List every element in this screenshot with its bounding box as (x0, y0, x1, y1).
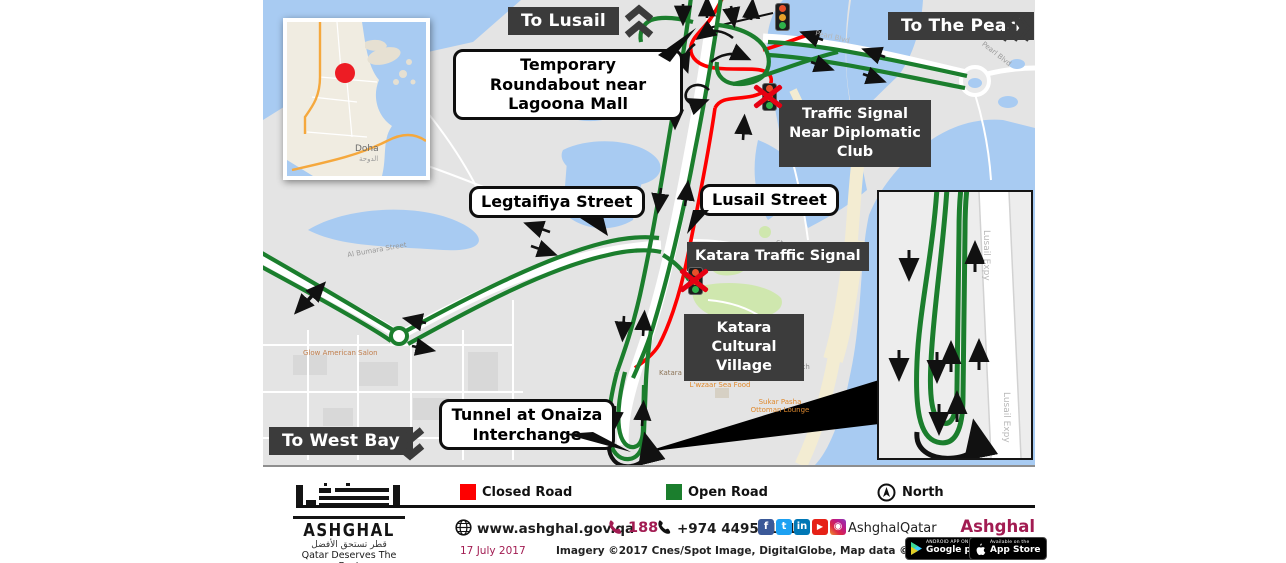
callout-pointer (575, 214, 611, 240)
overview-inset-map: Doha الدوحة (283, 18, 430, 180)
closed-road-legend-label: Closed Road (482, 485, 572, 500)
traffic-light-icon (775, 3, 790, 31)
google-play-icon (911, 542, 922, 555)
callout-pointer (679, 208, 713, 238)
katara-signal-label: Katara Traffic Signal (687, 242, 869, 271)
closed-x-icon (678, 265, 710, 297)
doha-label: Doha (355, 144, 379, 154)
hotline-number: 188 (628, 520, 658, 536)
twitter-icon[interactable]: t (776, 519, 792, 535)
ashghal-road-closure-flyer: Doha الدوحة Pearl Blvd Pearl Blvd Al Bum… (0, 0, 1286, 563)
tunnel-detail-inset: Lusail Expy Lusail Expy (877, 190, 1033, 460)
sukar-pasha-label: Sukar Pasha Ottoman Lounge (749, 398, 811, 414)
logo-wordmark: ASHGHAL (293, 519, 405, 540)
to-west-bay-label: To West Bay (269, 427, 413, 455)
chevron-down-icon (394, 425, 426, 461)
footer-divider (296, 505, 1035, 508)
north-label: North (902, 485, 944, 500)
chevron-up-icon (623, 4, 655, 40)
callout-pointer (563, 432, 635, 456)
closed-x-icon (752, 81, 784, 113)
legtaifiya-street-callout: Legtaifiya Street (469, 186, 645, 218)
globe-icon (455, 519, 472, 536)
logo-tagline-arabic: قطر تستحق الأفضل (293, 540, 405, 550)
social-handle: AshghalQatar (848, 521, 937, 536)
open-road-swatch (666, 484, 682, 500)
lwzaar-sea-food-label: L'wzaar Sea Food (689, 381, 751, 389)
app-store-badge-text: App Store (990, 546, 1041, 555)
facebook-icon[interactable]: f (758, 519, 774, 535)
lusail-expy-road-label: Lusail Expy (1001, 392, 1011, 443)
callout-pointer (656, 28, 701, 63)
temporary-roundabout-callout: Temporary Roundabout near Lagoona Mall (453, 49, 683, 120)
phone-icon (608, 519, 623, 535)
to-lusail-label: To Lusail (508, 7, 619, 35)
glow-american-salon-label: Glow American Salon (303, 349, 378, 357)
open-road-legend-label: Open Road (688, 485, 768, 500)
lusail-street-callout: Lusail Street (700, 184, 839, 216)
lusail-expy-road-label: Lusail Expy (981, 230, 991, 281)
traffic-map: Doha الدوحة Pearl Blvd Pearl Blvd Al Bum… (263, 0, 1035, 467)
closed-road-swatch (460, 484, 476, 500)
chevron-right-icon (1000, 13, 1034, 43)
publish-date: 17 July 2017 (460, 545, 526, 557)
legtaifiya-roundabout (391, 328, 407, 344)
youtube-icon[interactable]: ▶ (812, 519, 828, 535)
doha-arabic-label: الدوحة (359, 155, 378, 163)
ashghal-logo: ASHGHAL قطر تستحق الأفضل Qatar Deserves … (293, 483, 405, 563)
social-icons: ftin▶◉ (758, 519, 848, 538)
location-dot (335, 63, 355, 83)
katara-village-label: Katara Cultural Village (684, 314, 804, 381)
app-store-badge[interactable]: Available on the App Store (969, 537, 1047, 560)
logo-tagline-english: Qatar Deserves The Best (293, 550, 405, 563)
apple-icon (975, 542, 986, 556)
phone-icon (657, 519, 672, 535)
linkedin-icon[interactable]: in (794, 519, 810, 535)
instagram-icon[interactable]: ◉ (830, 519, 846, 535)
diplomatic-signal-label: Traffic Signal Near Diplomatic Club (779, 100, 931, 167)
north-compass-icon (877, 483, 896, 502)
